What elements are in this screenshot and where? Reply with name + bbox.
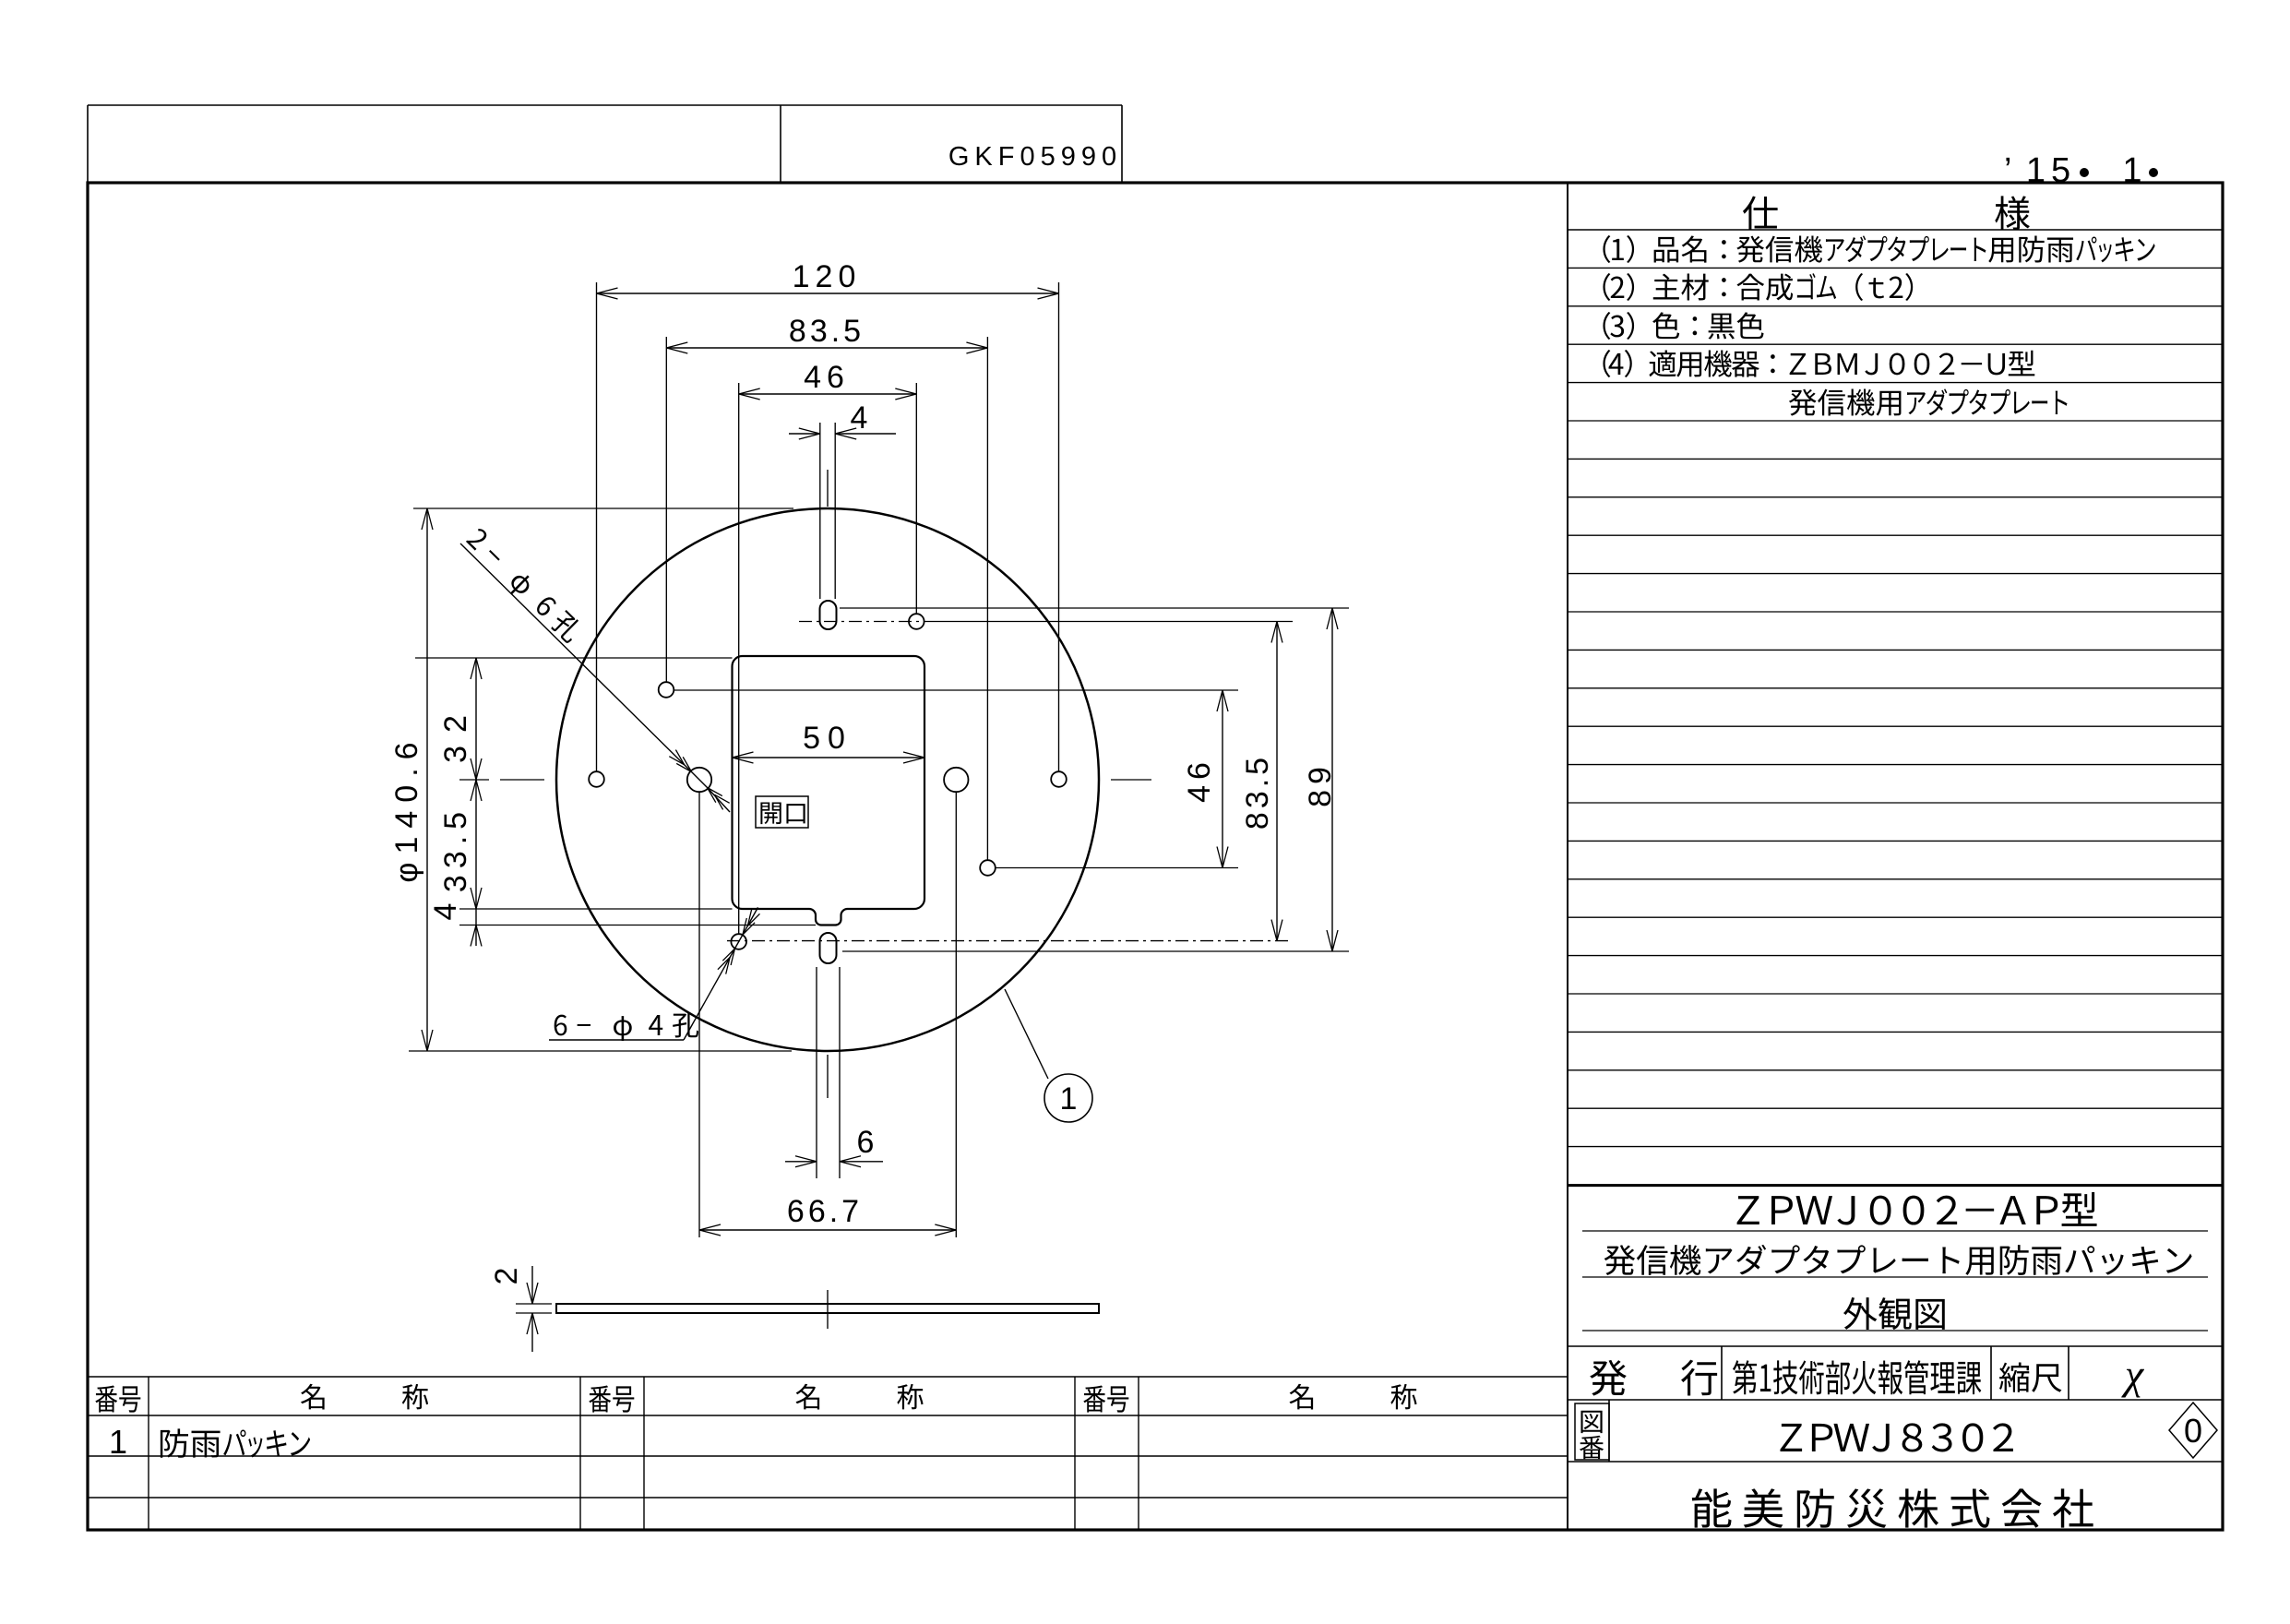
- svg-text:χ: χ: [2121, 1351, 2145, 1398]
- svg-text:83.5: 83.5: [1240, 754, 1275, 830]
- svg-text:1: 1: [2122, 151, 2141, 190]
- svg-text:6: 6: [857, 1125, 875, 1160]
- svg-text:15: 15: [2026, 151, 2076, 190]
- svg-text:66.7: 66.7: [787, 1194, 863, 1229]
- svg-text:1: 1: [1060, 1081, 1078, 1116]
- svg-text:1: 1: [109, 1423, 127, 1461]
- svg-text:4: 4: [851, 400, 868, 436]
- svg-text:GKF05990: GKF05990: [948, 142, 1122, 172]
- svg-text:2: 2: [489, 1268, 524, 1285]
- svg-text:0: 0: [2184, 1412, 2202, 1450]
- svg-text:46: 46: [804, 360, 850, 395]
- svg-text:83.5: 83.5: [789, 314, 865, 349]
- svg-text:89: 89: [1303, 761, 1338, 807]
- svg-text:4: 4: [428, 903, 463, 921]
- svg-text:46: 46: [1182, 757, 1217, 803]
- svg-text:33.5: 33.5: [438, 806, 473, 892]
- svg-text:50: 50: [803, 721, 853, 756]
- svg-text:’: ’: [2004, 151, 2011, 190]
- svg-text:φ140.6: φ140.6: [389, 734, 424, 882]
- svg-text:32: 32: [438, 702, 473, 763]
- svg-text:120: 120: [793, 259, 862, 294]
